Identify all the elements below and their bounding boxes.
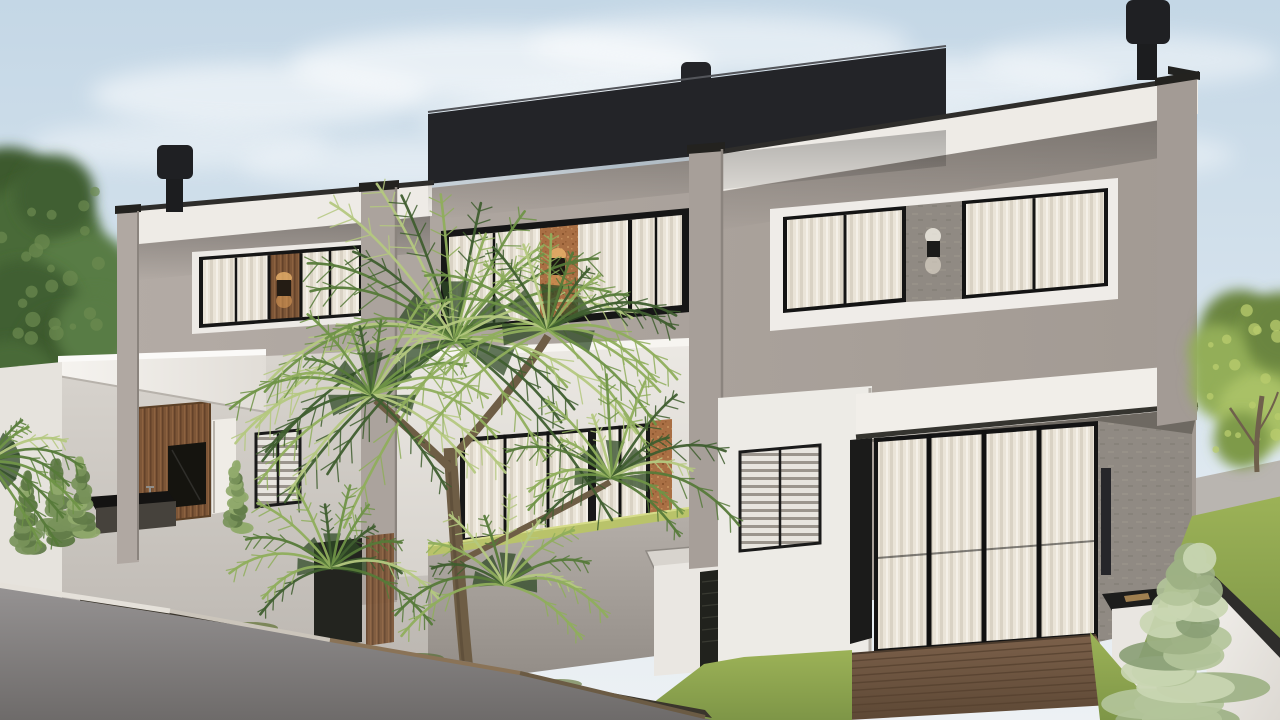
tree-canopy [1188, 324, 1244, 380]
palm-leaflet [503, 449, 514, 450]
palm-leaflet [600, 609, 601, 623]
palm-leaflet [687, 468, 695, 469]
leaf-highlight [1224, 430, 1231, 437]
louver-window [740, 445, 820, 551]
palm-leaflet [287, 572, 296, 573]
leaf-highlight [84, 307, 96, 319]
palm-leaflet [63, 479, 64, 490]
palm-leaflet [245, 432, 246, 451]
leaf-highlight [26, 286, 38, 298]
palm-leaflet [555, 576, 563, 577]
leaf-highlight [80, 226, 90, 236]
pilaster [115, 204, 141, 564]
leaf-highlight [90, 318, 102, 330]
palm-leaflet [533, 529, 542, 530]
palm-leaflet [553, 412, 554, 428]
leaf-highlight [1241, 304, 1253, 316]
leaf-highlight [63, 271, 78, 286]
leaf-highlight [47, 210, 57, 220]
palm-leaflet [423, 290, 424, 299]
palm-leaflet [669, 499, 670, 509]
palm-leaflet [34, 510, 35, 525]
leaf-highlight [1260, 373, 1271, 384]
patio-light-fixture [1101, 468, 1111, 575]
palm-leaflet [261, 381, 277, 382]
leaf-highlight [12, 328, 23, 339]
palm-leaflet [297, 510, 308, 511]
leaf-highlight [1235, 432, 1241, 438]
leaf-highlight [34, 234, 49, 249]
shrub-foliage [235, 460, 241, 472]
architectural-render [0, 0, 1280, 720]
palm-leaflet [502, 392, 503, 415]
tree-canopy [1214, 412, 1270, 468]
palm-leaflet [668, 368, 669, 386]
palm-leaflet [586, 266, 587, 272]
palm-leaflet [431, 591, 432, 606]
leaf-highlight [1212, 446, 1219, 453]
palm-leaflet [575, 288, 576, 295]
leaf-highlight [1208, 342, 1214, 348]
leaf-highlight [1207, 393, 1214, 400]
leaf-highlight [1248, 323, 1260, 335]
palm-leaflet [482, 334, 495, 335]
palm-leaflet [270, 410, 271, 437]
palm-leaflet [60, 439, 68, 440]
palm-leaflet [553, 508, 554, 519]
leaf-highlight [70, 323, 77, 330]
palm-leaflet [657, 509, 658, 522]
leaf-highlight [1229, 359, 1240, 370]
palm-leaflet [511, 260, 512, 269]
wood-slat-screen [366, 533, 394, 646]
palm-leaflet [388, 563, 400, 564]
palm-leaflet [354, 536, 355, 542]
leaf-highlight [49, 326, 64, 341]
palm-leaflet [674, 529, 675, 540]
sconce-glow [925, 256, 941, 274]
palm-leaflet [362, 514, 371, 515]
leaf-highlight [78, 200, 89, 211]
sconce-glow [276, 294, 292, 308]
palm-leaflet [651, 316, 665, 317]
leaf-highlight [90, 187, 100, 197]
wall-sconce [277, 280, 291, 296]
leaf-highlight [1213, 364, 1219, 370]
palm-leaflet [487, 427, 488, 444]
leaf-highlight [18, 298, 28, 308]
leaf-highlight [27, 208, 36, 217]
palm-leaflet [647, 413, 648, 430]
palm-leaflet [537, 518, 538, 524]
palm-leaflet [361, 508, 362, 514]
wall-sconce [927, 241, 940, 257]
leaf-highlight [24, 331, 38, 345]
palm-leaflet [583, 561, 592, 562]
tree-canopy [15, 155, 95, 235]
palm-leaflet [730, 515, 731, 532]
leaf-highlight [25, 312, 40, 327]
leaf-highlight [1249, 402, 1256, 409]
palm-leaflet [717, 448, 729, 449]
palm-leaflet [537, 524, 545, 525]
palm-leaflet [370, 206, 391, 207]
palm-leaflet [340, 429, 341, 462]
palm-leaflet [497, 244, 498, 252]
palm-leaflet [51, 450, 61, 451]
palm-leaflet [16, 421, 17, 425]
shrub-foliage [1183, 543, 1216, 574]
leaf-highlight [47, 265, 55, 273]
palm-leaflet [317, 452, 318, 470]
palm-leaflet [645, 417, 646, 427]
palm-leaflet [273, 599, 274, 610]
patio-entry-door [850, 438, 872, 644]
leaf-highlight [45, 280, 58, 293]
glass-sliding-doors [874, 421, 1098, 656]
leaf-highlight [92, 257, 105, 270]
leaf-highlight [21, 251, 31, 261]
palm-leaflet [575, 278, 576, 285]
palm-leaflet [267, 472, 268, 489]
palm-leaflet [357, 521, 367, 522]
leaf-highlight [1222, 334, 1232, 344]
palm-leaflet [30, 458, 39, 459]
